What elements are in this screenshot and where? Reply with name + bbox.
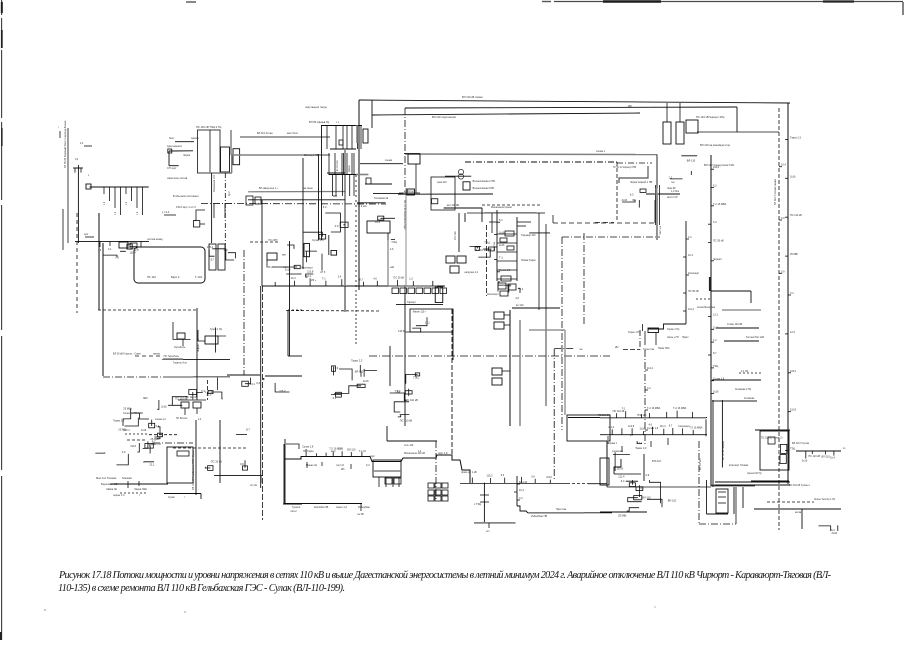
svg-text:т 2: т 2 (520, 288, 524, 291)
svg-text:ВЛ 110 Атлан: ВЛ 110 Атлан (257, 132, 273, 135)
svg-text:2х16: 2х16 (141, 429, 147, 432)
svg-text:т: т (184, 496, 186, 499)
svg-text:ВЛ 35 кВ Гоцатль - Совет: ВЛ 35 кВ Гоцатль - Совет (113, 353, 142, 356)
svg-text:т: т (58, 127, 60, 129)
svg-text:ТЭЦ: ТЭЦ (484, 241, 489, 245)
svg-text:ВЛ 110 Степная линия: ВЛ 110 Степная линия (774, 178, 777, 205)
svg-text:4,6: 4,6 (515, 296, 519, 300)
svg-text:Теркм 1 Пр: Теркм 1 Пр (667, 328, 680, 331)
svg-text:0,9: 0,9 (646, 473, 650, 477)
svg-text:тест 2: тест 2 (123, 429, 130, 432)
svg-text:8,7: 8,7 (713, 352, 717, 355)
svg-text:Барс 2: Барс 2 (171, 275, 180, 279)
svg-text:Головная 2в: Головная 2в (374, 197, 389, 200)
svg-text:боковая: боковая (122, 476, 132, 480)
svg-text:25 МВт: 25 МВт (123, 406, 132, 410)
svg-text:Т-1: Т-1 (622, 408, 626, 411)
svg-text:Терек 1 Пр: Терек 1 Пр (628, 331, 641, 334)
svg-text:13,1: 13,1 (425, 320, 431, 324)
svg-text:Престиж: Престиж (556, 508, 566, 511)
svg-text:у л 2,3: у л 2,3 (162, 211, 170, 214)
svg-text:3,4: 3,4 (519, 497, 523, 500)
svg-text:Манас 2в: Манас 2в (306, 464, 318, 467)
svg-text:ВЛ 35 офис 1 Пр: ВЛ 35 офис 1 Пр (309, 120, 330, 124)
svg-text:10,4: 10,4 (781, 164, 786, 167)
svg-text:2,4: 2,4 (198, 419, 202, 421)
svg-text:1,2: 1,2 (713, 339, 717, 342)
svg-text:Гуниб 1 Пр: Гуниб 1 Пр (210, 328, 223, 331)
svg-text:Чирка ЗЭв: Чирка ЗЭв (134, 487, 147, 491)
svg-text:6,3: 6,3 (501, 474, 505, 477)
svg-text:Избербаш ПВ: Избербаш ПВ (531, 515, 547, 518)
svg-text:115,2: 115,2 (486, 475, 493, 478)
svg-text:111,4: 111,4 (647, 367, 653, 370)
svg-text:ГРМ 110: ГРМ 110 (637, 414, 647, 417)
svg-text:6,3: 6,3 (499, 219, 503, 222)
svg-text:Восход 1 ПВ: Восход 1 ПВ (304, 154, 319, 157)
svg-text:110,8: 110,8 (617, 467, 624, 471)
svg-text:АТ-2: АТ-2 (268, 266, 274, 269)
svg-text:2х16: 2х16 (499, 244, 505, 247)
svg-text:4,6: 4,6 (507, 284, 511, 288)
svg-text:ЗЕЗ: ЗЕЗ (143, 397, 148, 400)
svg-text:Кизилюрт: Кизилюрт (688, 272, 700, 275)
svg-text:115,2: 115,2 (279, 389, 286, 393)
svg-text:ВЛ 110 кВ схема: ВЛ 110 кВ схема (462, 95, 483, 99)
svg-text:1,2: 1,2 (669, 176, 673, 180)
svg-text:щит: щит (84, 233, 89, 236)
svg-text:0,9: 0,9 (240, 462, 244, 466)
svg-text:10,4: 10,4 (688, 254, 693, 257)
svg-text:вл 110: вл 110 (516, 304, 524, 307)
svg-text:ВЛ-110: ВЛ-110 (822, 456, 831, 459)
svg-text:ПС 110 кВ: ПС 110 кВ (808, 455, 820, 458)
svg-text:ПС 110 кВ: ПС 110 кВ (406, 398, 418, 402)
svg-text:каш Тепл: каш Тепл (287, 132, 298, 135)
svg-text:6,3: 6,3 (333, 396, 337, 400)
svg-text:2,3: 2,3 (336, 122, 340, 124)
svg-text:10,4: 10,4 (291, 277, 296, 280)
svg-text:4,1 Пв: 4,1 Пв (741, 370, 749, 373)
svg-text:ИЗ +: ИЗ + (311, 279, 317, 282)
svg-text:Т-1: Т-1 (499, 256, 503, 259)
svg-text:ост 2в: ост 2в (250, 484, 258, 487)
svg-text:ПС Гергебиль: ПС Гергебиль (164, 355, 180, 358)
svg-text:схема 1: схема 1 (596, 150, 606, 153)
svg-text:Т-2 16 МВА: Т-2 16 МВА (647, 407, 661, 410)
svg-text:ВЛ-110: ВЛ-110 (355, 370, 364, 374)
svg-text:т 2 кач: т 2 кач (359, 205, 367, 208)
svg-text:П ПС & Чирюрт ПВ: П ПС & Чирюрт ПВ (613, 165, 636, 169)
svg-text:Чайка Зв: Чайка Зв (106, 487, 118, 491)
svg-text:ВЛ-110: ВЛ-110 (687, 159, 696, 163)
svg-text:Новая Тарки: Новая Тарки (521, 259, 536, 262)
svg-text:кВт: кВт (615, 346, 620, 349)
svg-text:Сулак 1,8: Сулак 1,8 (713, 378, 725, 381)
svg-text:СП черт: СП черт (167, 167, 177, 170)
svg-text:ПС-ОРУ: ПС-ОРУ (269, 239, 279, 242)
svg-text:Атлан 110 кВ: Атлан 110 кВ (727, 323, 742, 326)
svg-text:1,2: 1,2 (115, 211, 117, 215)
svg-text:тек 08: тек 08 (357, 513, 364, 516)
svg-text:Практ: Практ (682, 336, 689, 339)
svg-text:110,8: 110,8 (398, 329, 405, 333)
svg-text:4,6: 4,6 (649, 423, 653, 426)
svg-text:10,4: 10,4 (830, 457, 835, 460)
svg-text:2х16: 2х16 (790, 175, 796, 178)
svg-text:1,9 Лок: 1,9 Лок (671, 190, 680, 193)
svg-text:4,6: 4,6 (373, 277, 377, 280)
svg-text:Чирка: Чирка (183, 154, 191, 157)
svg-text:Чирка Чиркей 1 ПВ: Чирка Чиркей 1 ПВ (630, 181, 653, 184)
svg-text:1,6: 1,6 (98, 250, 102, 252)
svg-text:Тарнаир 110: Тарнаир 110 (521, 234, 536, 237)
svg-text:111,4: 111,4 (608, 426, 614, 429)
svg-text:ПС Ботлих: ПС Ботлих (176, 418, 188, 420)
svg-text:ВЛ 110 кач: ВЛ 110 кач (700, 458, 702, 470)
svg-text:25 МВт: 25 МВт (790, 253, 799, 256)
svg-text:болг: болг (169, 137, 174, 140)
svg-text:ост: ост (486, 530, 491, 533)
svg-text:1,2: 1,2 (126, 201, 128, 205)
svg-text:Избербаш: Избербаш (358, 506, 370, 509)
svg-text:ТЭЦ: ТЭЦ (395, 390, 400, 394)
svg-text:Рисунок 17.18 Потоки мощности: Рисунок 17.18 Потоки мощности и уровни н… (58, 570, 832, 581)
svg-text:прим.заг 1 кВ: прим.заг 1 кВ (461, 471, 477, 474)
svg-text:тяга 2: тяга 2 (290, 510, 297, 513)
svg-text:В обычном состоянии: В обычном состоянии (173, 195, 199, 198)
svg-text:ВЛ 110 кВ Махачкала подкл: ВЛ 110 кВ Махачкала подкл (403, 200, 405, 230)
svg-text:пр 2: пр 2 (228, 191, 231, 196)
svg-text:Сулак 1,8: Сулак 1,8 (302, 446, 314, 449)
svg-text:Кирова 1: Кирова 1 (607, 442, 618, 445)
svg-text:ПС 110 кВ Сулак 2 т: ПС 110 кВ Сулак 2 т (761, 437, 784, 440)
svg-text:Сигнал и ПВ 2: Сигнал и ПВ 2 (123, 412, 140, 415)
svg-text:ВЛ-110: ВЛ-110 (347, 449, 356, 452)
svg-text:12,5: 12,5 (790, 331, 795, 334)
svg-text:Активная 2 Пр: Активная 2 Пр (735, 388, 752, 391)
svg-text:Сулак 1,8: Сулак 1,8 (499, 269, 511, 272)
svg-text:вл стан: вл стан (493, 241, 496, 250)
svg-text:2х16: 2х16 (640, 428, 646, 431)
svg-text:Т-2 16 МВА: Т-2 16 МВА (713, 203, 727, 206)
svg-text:Махачкала прием: Махачкала прием (491, 206, 512, 209)
svg-text:0,4: 0,4 (366, 464, 370, 467)
svg-text:подстанция текущ: подстанция текущ (305, 106, 328, 109)
svg-text:наб: наб (390, 266, 395, 269)
svg-text:место СР: место СР (667, 196, 678, 199)
svg-text:8,7: 8,7 (246, 428, 250, 432)
svg-text:Кизилюрт: Кизилюрт (487, 292, 499, 296)
svg-text:ПС 110 кВ: ПС 110 кВ (790, 214, 802, 217)
svg-text:ВЛ 110 Чирюртская ГЭС: ВЛ 110 Чирюртская ГЭС (704, 163, 734, 167)
svg-text:8,7: 8,7 (211, 257, 215, 261)
svg-text:Адм немного: Адм немного (167, 145, 183, 148)
svg-text:0,9: 0,9 (531, 475, 535, 478)
svg-text:ТЭЦ: ТЭЦ (413, 376, 418, 380)
svg-text:т: т (139, 494, 141, 497)
svg-text:4,6: 4,6 (390, 248, 394, 251)
svg-text:25 МВт: 25 МВт (618, 514, 627, 518)
svg-text:2х16: 2х16 (622, 198, 628, 202)
svg-text:6,3: 6,3 (201, 389, 205, 393)
svg-text:ВЛ-110: ВЛ-110 (519, 481, 528, 484)
svg-text:3,4: 3,4 (621, 479, 625, 483)
svg-text:Теплый Пос 1кВ: Теплый Пос 1кВ (746, 336, 764, 339)
svg-text:АТ З: АТ З (320, 271, 326, 274)
svg-text:Мал.Атл.Тяговая: Мал.Атл.Тяговая (96, 476, 117, 480)
svg-text:вл 2: вл 2 (331, 450, 336, 453)
svg-text:2х16: 2х16 (713, 391, 719, 394)
svg-text:вл 110 кач: вл 110 кач (337, 159, 339, 171)
svg-text:3,4: 3,4 (790, 292, 794, 295)
svg-text:Зелен Теплор 1 Пр: Зелен Теплор 1 Пр (814, 498, 836, 501)
svg-text:110-135) в схеме ремонта ВЛ 1: 110-135) в схеме ремонта ВЛ 110 кВ Гельб… (58, 583, 345, 594)
svg-text:1,2: 1,2 (409, 278, 413, 281)
svg-text:0,4: 0,4 (75, 159, 79, 161)
svg-text:6,3: 6,3 (713, 185, 717, 188)
svg-text:2х16: 2х16 (285, 267, 291, 271)
svg-text:Махачкала 110 кВ: Махачкала 110 кВ (404, 452, 425, 455)
svg-text:ПС 110 ВЛ: ПС 110 ВЛ (598, 414, 610, 417)
svg-text:115,2: 115,2 (207, 245, 214, 249)
svg-text:ПС 35 кВ: ПС 35 кВ (713, 240, 724, 243)
svg-text:Махач 110 т: Махач 110 т (413, 311, 427, 314)
svg-text:2,3: 2,3 (80, 143, 84, 145)
svg-text:затем Выгрузка: затем Выгрузка (697, 306, 716, 309)
svg-text:текст на: текст на (659, 225, 662, 235)
svg-text:2х16: 2х16 (832, 531, 838, 535)
svg-text:ТЭЦ: ТЭЦ (391, 240, 396, 244)
svg-text:13,1: 13,1 (149, 463, 155, 467)
svg-text:нагрузка 1,2: нагрузка 1,2 (464, 271, 478, 274)
svg-text:0,9: 0,9 (781, 270, 785, 273)
svg-text:с: с (88, 175, 90, 177)
svg-text:Активная: Активная (744, 397, 755, 400)
svg-text:вл 110 крат: вл 110 крат (404, 191, 417, 193)
svg-text:й В-б кирт 1 шт б: й В-б кирт 1 шт б (176, 206, 196, 209)
svg-text:схема 1,2: схема 1,2 (155, 418, 166, 421)
svg-text:0,9: 0,9 (122, 450, 126, 454)
svg-text:2х16: 2х16 (130, 444, 136, 448)
svg-text:ВЛ 110 на минимум 2 кр: ВЛ 110 на минимум 2 кр (700, 143, 731, 147)
svg-text:тек: тек (579, 348, 583, 351)
svg-text:111,4: 111,4 (688, 308, 694, 311)
svg-text:2х16: 2х16 (499, 232, 505, 235)
svg-text:Береговая 2В: Береговая 2В (101, 482, 118, 486)
svg-text:ПС 110 кВ Сулак-1: ПС 110 кВ Сулак-1 (789, 484, 810, 487)
svg-text:Сулак: Сулак (168, 496, 176, 499)
svg-text:0,9: 0,9 (335, 366, 339, 370)
svg-text:Турали: Турали (292, 506, 301, 509)
svg-text:Т-1: Т-1 (322, 277, 326, 280)
svg-text:Тарки 2,3: Тарки 2,3 (351, 359, 363, 363)
svg-text:2х16: 2х16 (161, 405, 167, 409)
svg-text:с ТЭЦ: с ТЭЦ (474, 503, 481, 506)
svg-text:4,6: 4,6 (640, 486, 644, 490)
svg-text:12,5: 12,5 (206, 393, 212, 397)
svg-text:ВЛ 110 б Сулак: ВЛ 110 б Сулак (792, 442, 810, 445)
svg-text:3,4: 3,4 (713, 221, 717, 224)
svg-text:так свыш: так свыш (303, 188, 313, 190)
svg-text:ВЛ 110 кВ Чирюрт: ВЛ 110 кВ Чирюрт (723, 440, 725, 460)
svg-text:Тарнаут: Тарнаут (407, 301, 417, 304)
svg-text:Тарки 2,3: Тарки 2,3 (635, 446, 647, 450)
svg-text:ПС 35 кВ: ПС 35 кВ (393, 276, 404, 279)
svg-text:8,7: 8,7 (630, 433, 634, 437)
svg-text:ВЛ 110 кВ Гельбахская ГЭС - Су: ВЛ 110 кВ Гельбахская ГЭС - Сулак (192, 450, 195, 490)
svg-text:БТА 110: БТА 110 (652, 460, 662, 463)
svg-text:Прим ПСК: Прим ПСК (658, 347, 670, 350)
svg-text:0,9: 0,9 (781, 217, 785, 220)
svg-text:ПС 35 кВ: ПС 35 кВ (688, 290, 699, 293)
svg-text:прим 110: прим 110 (437, 182, 447, 184)
svg-text:13,1: 13,1 (250, 382, 256, 386)
svg-text:Чирюрт: Чирюрт (713, 258, 723, 261)
svg-text:110,8: 110,8 (628, 425, 635, 428)
svg-text:Махачкала 110: Махачкала 110 (213, 175, 216, 192)
svg-text:111,4: 111,4 (618, 475, 625, 479)
svg-text:АТ стаб: АТ стаб (454, 231, 457, 240)
svg-text:Каспийск 2В: Каспийск 2В (314, 506, 329, 509)
svg-text:0,9: 0,9 (256, 381, 260, 385)
svg-text:схема: схема (385, 159, 393, 162)
svg-text:10,4: 10,4 (713, 326, 718, 329)
svg-text:вкл 110 кВт: вкл 110 кВт (447, 204, 460, 207)
svg-text:ВЛ завод мощ 1 +: ВЛ завод мощ 1 + (259, 188, 279, 190)
svg-text:2х16: 2х16 (546, 476, 552, 479)
svg-text:ТЭЦ: ТЭЦ (790, 448, 795, 451)
svg-text:Тарки 2,3: Тарки 2,3 (790, 136, 801, 139)
svg-text:Гоцатль й кл: Гоцатль й кл (173, 362, 188, 365)
svg-text:такт: такт (282, 254, 287, 257)
svg-text:Чиркей ГЭС: Чиркей ГЭС (197, 338, 200, 352)
svg-text:Админ: Админ (191, 137, 199, 140)
svg-text:Сулак 1,8: Сулак 1,8 (312, 238, 324, 242)
svg-text:8,7: 8,7 (152, 440, 156, 444)
svg-text:Т-2 16 МВА: Т-2 16 МВА (689, 426, 703, 429)
svg-text:перем 1,3: перем 1,3 (113, 494, 125, 497)
svg-text:2х16: 2х16 (363, 379, 369, 383)
svg-text:прием: прием (349, 165, 351, 172)
svg-text:порт: порт (370, 455, 376, 458)
svg-text:тек 1,8: тек 1,8 (336, 464, 344, 467)
svg-text:6,3: 6,3 (831, 528, 835, 532)
svg-text:перех 1,2: перех 1,2 (336, 506, 347, 509)
svg-text:1,2: 1,2 (137, 211, 139, 215)
svg-text:2х16: 2х16 (802, 459, 808, 462)
svg-text:прием 110 Пр: прием 110 Пр (747, 473, 762, 475)
svg-text:Терек том: Терек том (643, 348, 654, 351)
svg-text:110,8: 110,8 (307, 270, 314, 274)
svg-text:ВЛ 110 подстанция: ВЛ 110 подстанция (432, 115, 456, 119)
svg-text:прием: прием (153, 353, 160, 356)
svg-text:3,4: 3,4 (688, 236, 692, 239)
svg-text:3,4: 3,4 (338, 276, 342, 279)
svg-text:8,7: 8,7 (359, 278, 363, 281)
svg-text:1,2: 1,2 (104, 201, 106, 205)
svg-text:3,4: 3,4 (647, 387, 651, 390)
svg-text:Волноломная 2 ПВ: Волноломная 2 ПВ (473, 180, 495, 183)
svg-text:3,4: 3,4 (323, 205, 327, 209)
svg-text:Кизилюрт Тяговая: Кизилюрт Тяговая (729, 465, 749, 467)
svg-text:ТЭЦ: ТЭЦ (713, 365, 718, 368)
svg-text:ПС 110 кВ Чирюрт 2Пр: ПС 110 кВ Чирюрт 2Пр (696, 115, 725, 119)
svg-text:2,4: 2,4 (108, 249, 112, 251)
svg-text:ПС 110 кВ: ПС 110 кВ (400, 419, 412, 423)
svg-text:сх: сх (843, 447, 846, 450)
svg-text:ВЛ-110: ВЛ-110 (668, 499, 677, 503)
svg-text:110,8: 110,8 (790, 409, 797, 412)
svg-text:теплов назад: теплов назад (147, 238, 163, 241)
svg-text:0,9: 0,9 (224, 248, 228, 252)
svg-text:сеть 110: сеть 110 (404, 444, 414, 447)
svg-text:ВЛ 35 кВ Верхний Узел о перехо: ВЛ 35 кВ Верхний Узел о переход больш (64, 121, 67, 168)
svg-text:ПС 110 кВ ТЭЦ 2 Пр: ПС 110 кВ ТЭЦ 2 Пр (196, 125, 222, 129)
svg-text:115,2: 115,2 (790, 370, 797, 373)
svg-text:13,1: 13,1 (713, 313, 718, 316)
svg-text:ПС 35 кВ: ПС 35 кВ (211, 460, 222, 464)
svg-text:кВт: кВт (341, 468, 346, 471)
svg-text:12,5: 12,5 (134, 248, 140, 252)
svg-text:4,6: 4,6 (115, 256, 119, 260)
svg-text:Т-2 16 МВА: Т-2 16 МВА (673, 407, 687, 410)
svg-text:порт 1,8: порт 1,8 (438, 452, 448, 455)
svg-text:ПС 110: ПС 110 (147, 275, 156, 279)
svg-text:ПС Тарки: ПС Тарки (303, 450, 314, 453)
svg-text:0,9: 0,9 (335, 224, 339, 228)
svg-text:Гергебиль: Гергебиль (174, 346, 186, 349)
svg-text:метка: метка (795, 512, 802, 514)
svg-text:Т-1 10: Т-1 10 (359, 450, 367, 453)
svg-text:13,1: 13,1 (338, 448, 343, 451)
svg-text:10,4: 10,4 (519, 489, 524, 492)
svg-text:8,7: 8,7 (669, 425, 673, 428)
svg-text:Волноломная ГИБ: Волноломная ГИБ (473, 187, 495, 190)
svg-text:111,4: 111,4 (660, 425, 666, 428)
svg-text:известное состав: известное состав (167, 177, 188, 180)
svg-text:6,3: 6,3 (630, 192, 634, 196)
svg-text:связь у Пб: связь у Пб (667, 336, 679, 339)
svg-text:Т-104: Т-104 (195, 275, 203, 279)
svg-text:тек: тек (671, 181, 675, 184)
